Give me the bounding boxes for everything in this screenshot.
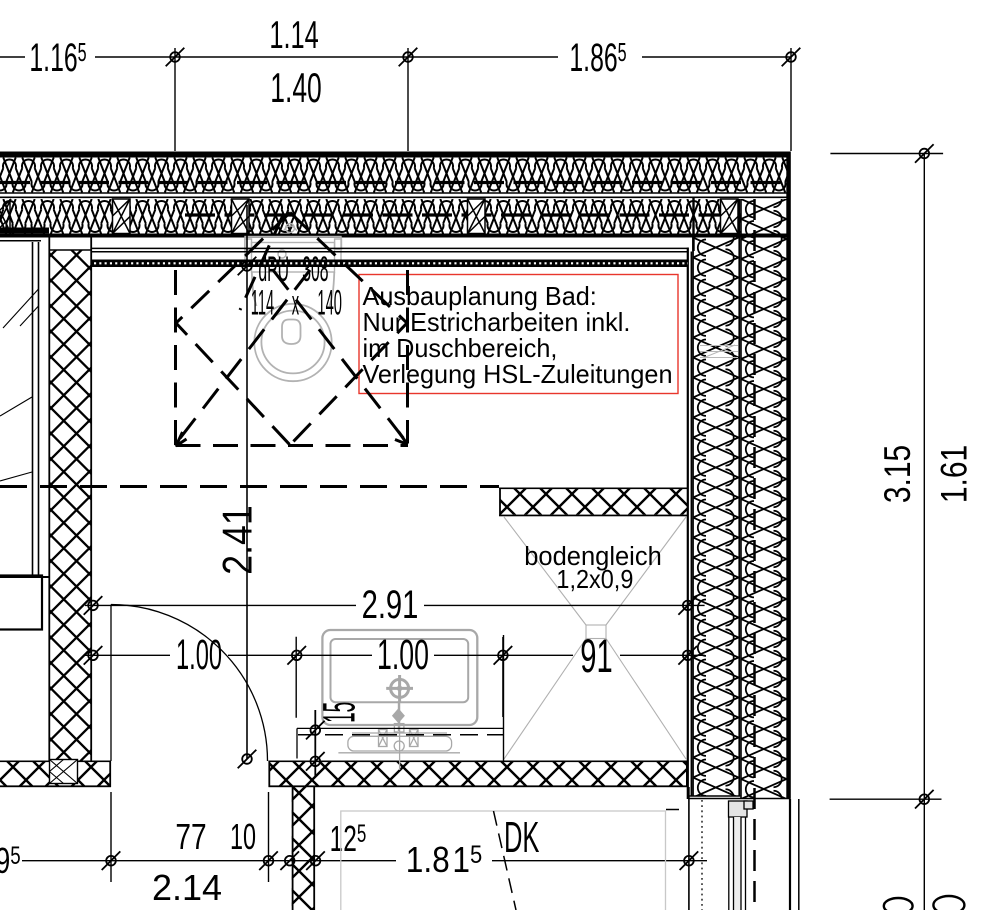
svg-text:Ausbauplanung Bad:: Ausbauplanung Bad: <box>363 283 597 311</box>
svg-text:140: 140 <box>317 283 342 322</box>
svg-text:2.14: 2.14 <box>152 867 222 908</box>
svg-text:Verlegung HSL-Zuleitungen: Verlegung HSL-Zuleitungen <box>363 361 673 389</box>
svg-text:1.61: 1.61 <box>933 445 975 503</box>
svg-text:1.00: 1.00 <box>377 631 429 679</box>
svg-text:Nur Estricharbeiten inkl.: Nur Estricharbeiten inkl. <box>363 309 631 337</box>
svg-text:15: 15 <box>315 702 365 723</box>
svg-text:3.15: 3.15 <box>877 445 919 503</box>
svg-text:1.40: 1.40 <box>270 65 321 112</box>
svg-text:10: 10 <box>230 818 256 857</box>
svg-text:91: 91 <box>580 631 612 683</box>
svg-text:2.41: 2.41 <box>215 505 261 574</box>
svg-text:DK: DK <box>504 812 539 862</box>
svg-text:1.00: 1.00 <box>176 632 222 679</box>
svg-text:1.14: 1.14 <box>269 12 318 56</box>
svg-text:77: 77 <box>175 817 206 857</box>
svg-text:114: 114 <box>251 283 274 322</box>
svg-text:im Duschbereich,: im Duschbereich, <box>363 335 558 363</box>
svg-text:2.91: 2.91 <box>362 583 419 628</box>
svg-text:1,2x0,9: 1,2x0,9 <box>556 566 633 594</box>
